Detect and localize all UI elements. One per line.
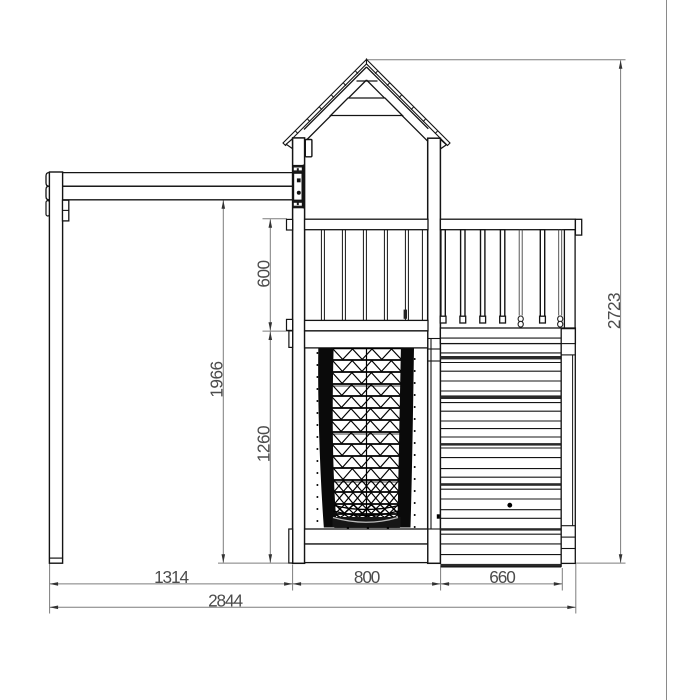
svg-text:2844: 2844 (208, 591, 243, 611)
svg-text:600: 600 (254, 260, 274, 287)
svg-text:1314: 1314 (154, 567, 189, 587)
svg-text:2723: 2723 (604, 293, 624, 329)
svg-text:800: 800 (354, 567, 380, 587)
svg-text:1260: 1260 (254, 426, 274, 462)
svg-text:660: 660 (489, 567, 515, 587)
svg-text:1966: 1966 (207, 361, 227, 397)
